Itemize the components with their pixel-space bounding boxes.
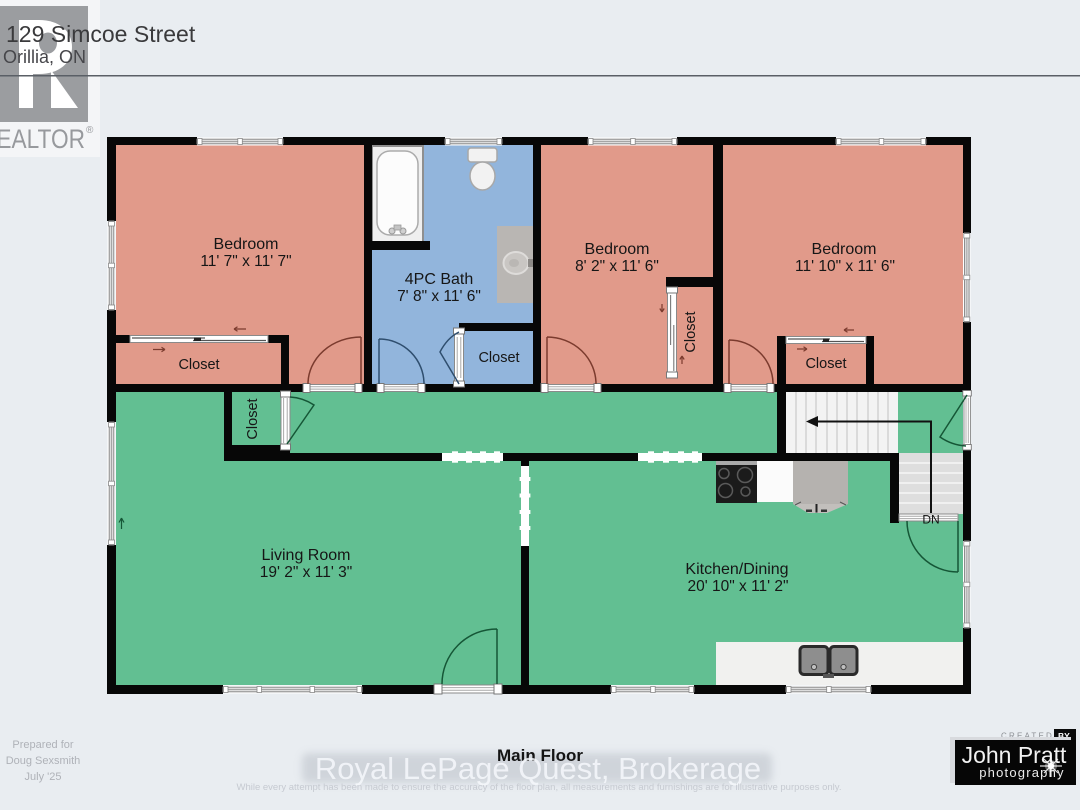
svg-text:Bedroom: Bedroom [812,241,877,258]
svg-text:Prepared for: Prepared for [12,739,73,751]
svg-text:REALTOR: REALTOR [0,124,85,154]
svg-text:Kitchen/Dining: Kitchen/Dining [685,561,788,578]
svg-text:7' 8" x 11' 6": 7' 8" x 11' 6" [397,288,481,305]
svg-text:11' 10" x 11' 6": 11' 10" x 11' 6" [795,258,895,275]
svg-text:Closet: Closet [683,311,699,352]
svg-text:While every attempt has been m: While every attempt has been made to ens… [237,782,842,793]
svg-text:®: ® [86,125,94,136]
svg-text:Orillia, ON: Orillia, ON [3,47,86,67]
svg-text:Closet: Closet [805,356,846,372]
svg-text:8' 2" x 11' 6": 8' 2" x 11' 6" [575,258,659,275]
svg-text:DN: DN [922,513,939,527]
svg-text:Living Room: Living Room [262,547,351,564]
svg-text:Bedroom: Bedroom [214,236,279,253]
svg-text:Closet: Closet [245,398,261,439]
svg-text:11' 7" x 11' 7": 11' 7" x 11' 7" [200,253,291,270]
svg-text:20' 10" x 11' 2": 20' 10" x 11' 2" [687,578,788,595]
svg-text:19' 2" x 11' 3": 19' 2" x 11' 3" [260,564,352,581]
svg-text:Royal LePage Quest, Brokerage: Royal LePage Quest, Brokerage [315,751,761,786]
svg-text:July '25: July '25 [25,771,62,783]
svg-text:Bedroom: Bedroom [585,241,650,258]
svg-text:Closet: Closet [478,350,519,366]
svg-text:129 Simcoe Street: 129 Simcoe Street [6,21,196,47]
svg-text:Doug Sexsmith: Doug Sexsmith [6,755,81,767]
svg-text:Closet: Closet [178,357,219,373]
svg-text:4PC Bath: 4PC Bath [405,271,473,288]
